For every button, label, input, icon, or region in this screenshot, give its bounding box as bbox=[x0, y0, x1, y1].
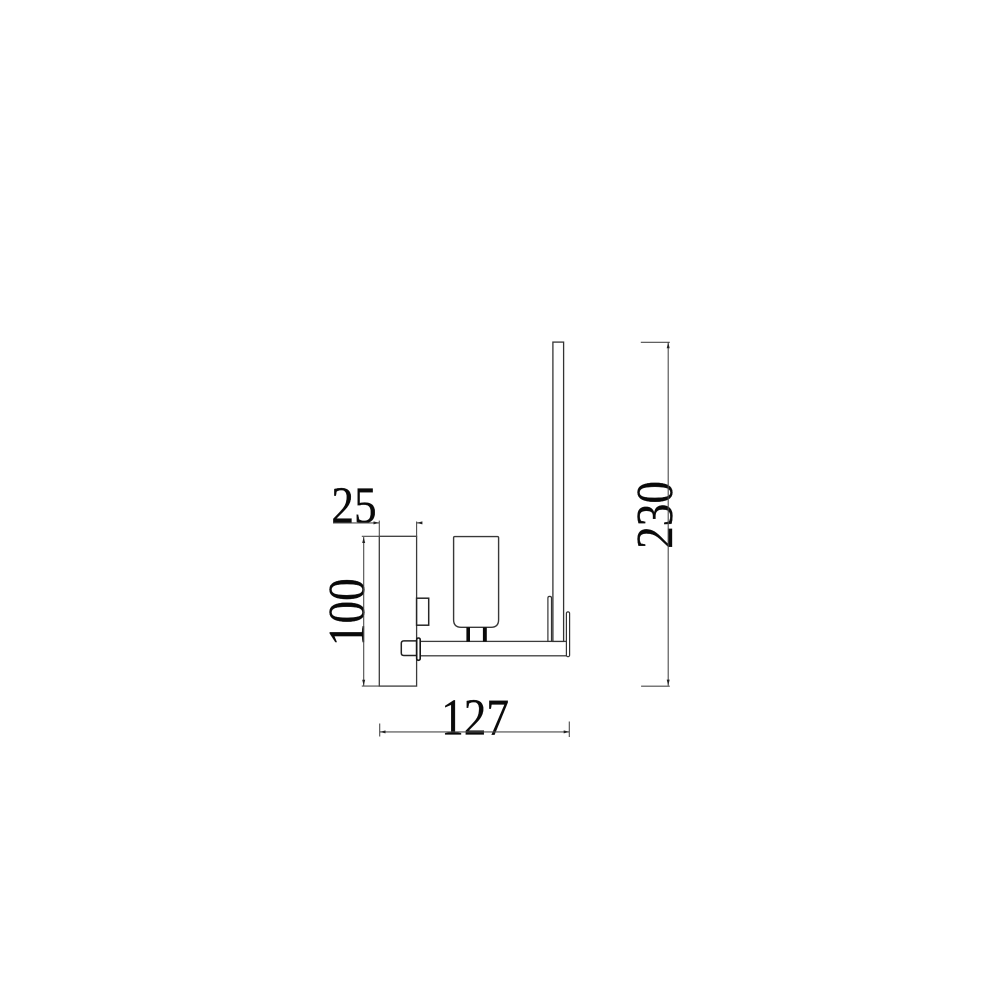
svg-text:100: 100 bbox=[318, 578, 376, 646]
svg-text:230: 230 bbox=[626, 481, 684, 549]
svg-text:25: 25 bbox=[331, 477, 376, 535]
svg-text:127: 127 bbox=[441, 689, 509, 747]
